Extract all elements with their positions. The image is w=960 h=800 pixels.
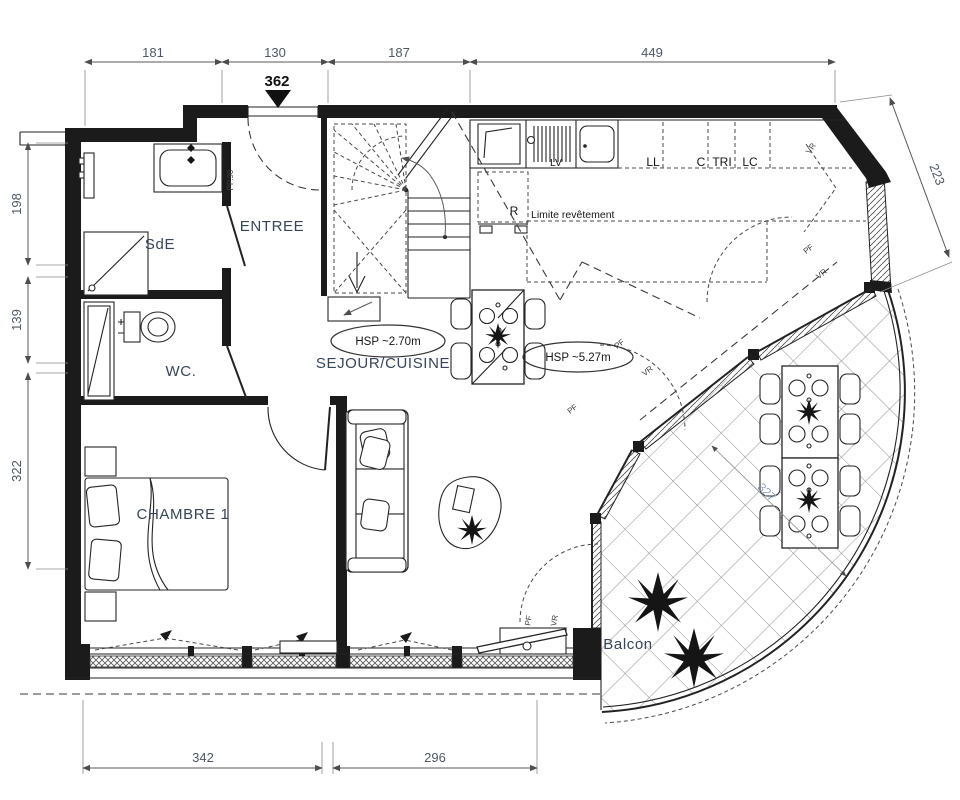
bedroom-furniture (85, 447, 337, 653)
dim-left-139: 139 (9, 309, 24, 331)
limite-revetement-label: Limite revêtement (531, 209, 615, 221)
room-label-sejour-cuisine: SEJOUR/CUISINE (316, 355, 450, 372)
bay-window-4 (592, 522, 601, 628)
room-label-balcon: Balcon (603, 636, 652, 653)
ne-window-casement (804, 144, 836, 232)
under-stair-cabinet (328, 297, 380, 321)
vr-label-2: VR (640, 364, 654, 378)
label-lv: LV (550, 157, 562, 169)
chambre-door-leaf (325, 407, 330, 470)
window-sill-2 (252, 656, 336, 667)
hsp-low-label: HSP ~2.70m (355, 336, 420, 348)
entry-marker-icon (265, 90, 291, 108)
hsp-high-label: HSP ~5.27m (545, 352, 610, 364)
pf-label-3: PF (566, 402, 580, 415)
radiator-icon (84, 153, 94, 198)
wc-cabinet (84, 302, 114, 400)
dim-top-187: 187 (388, 45, 410, 60)
coffee-table (439, 477, 501, 549)
label-c: C (697, 155, 706, 169)
pf-label-1: PF (802, 242, 816, 255)
label-tri: TRI (712, 155, 731, 169)
vr-label-4: VR (549, 614, 560, 627)
room-label-chambre1: CHAMBRE 1 (137, 506, 230, 523)
washbasin-icon (160, 150, 216, 186)
window-sill-4 (462, 656, 573, 667)
sde-door-leaf (227, 206, 245, 266)
entry-door-swing (248, 118, 320, 190)
entry-level-value: 362 (264, 73, 289, 90)
bed-icon (85, 478, 228, 590)
dim-left-322: 322 (9, 460, 24, 482)
annotation-labels: HSP ~2.70m HSP ~5.27m Limite revêtement … (226, 169, 633, 372)
window-band-ne (866, 176, 891, 290)
label-lc: LC (742, 155, 758, 169)
window-sill-1 (90, 656, 242, 667)
nightstand-bottom (85, 592, 116, 621)
floor-plan-page: 181 130 187 449 362 198 139 322 223 342 … (0, 0, 960, 800)
room-label-entree: ENTREE (240, 218, 304, 235)
fridge-zone (478, 172, 528, 222)
dining-table (451, 290, 545, 384)
desk (477, 628, 567, 654)
toilet-icon (118, 312, 175, 342)
dim-left-198: 198 (9, 193, 24, 215)
room-label-wc: WC. (166, 363, 197, 380)
label-ll: LL (646, 155, 660, 169)
dim-top-130: 130 (264, 45, 286, 60)
dim-top-449: 449 (641, 45, 663, 60)
vr-label-5: VR (804, 141, 818, 155)
bathroom-fixtures (79, 144, 222, 400)
floor-plan-drawing: 181 130 187 449 362 198 139 322 223 342 … (0, 0, 960, 800)
dim-bottom-342: 342 (192, 750, 214, 765)
dim-right-223: 223 (926, 162, 948, 188)
stair-down-arrow (349, 252, 365, 292)
shower-icon (84, 232, 148, 295)
nightstand-top (85, 447, 116, 476)
dim-top-181: 181 (142, 45, 164, 60)
label-r: R (510, 204, 519, 218)
bay-door-swing-1 (707, 217, 792, 302)
tv-bench (280, 641, 337, 653)
sofa-icon (346, 410, 408, 572)
chambre-door-swing (268, 407, 325, 470)
window-sill-3 (350, 656, 452, 667)
room-label-sde: SdE (145, 236, 175, 253)
sink-icon (580, 126, 614, 162)
staircase (328, 108, 470, 321)
pp90-label: PP.90 (226, 169, 235, 190)
wc-door-leaf (227, 346, 247, 400)
dim-bottom-296: 296 (424, 750, 446, 765)
bay-door-swing-3 (520, 544, 598, 622)
pf-label-4: PF (523, 615, 534, 627)
